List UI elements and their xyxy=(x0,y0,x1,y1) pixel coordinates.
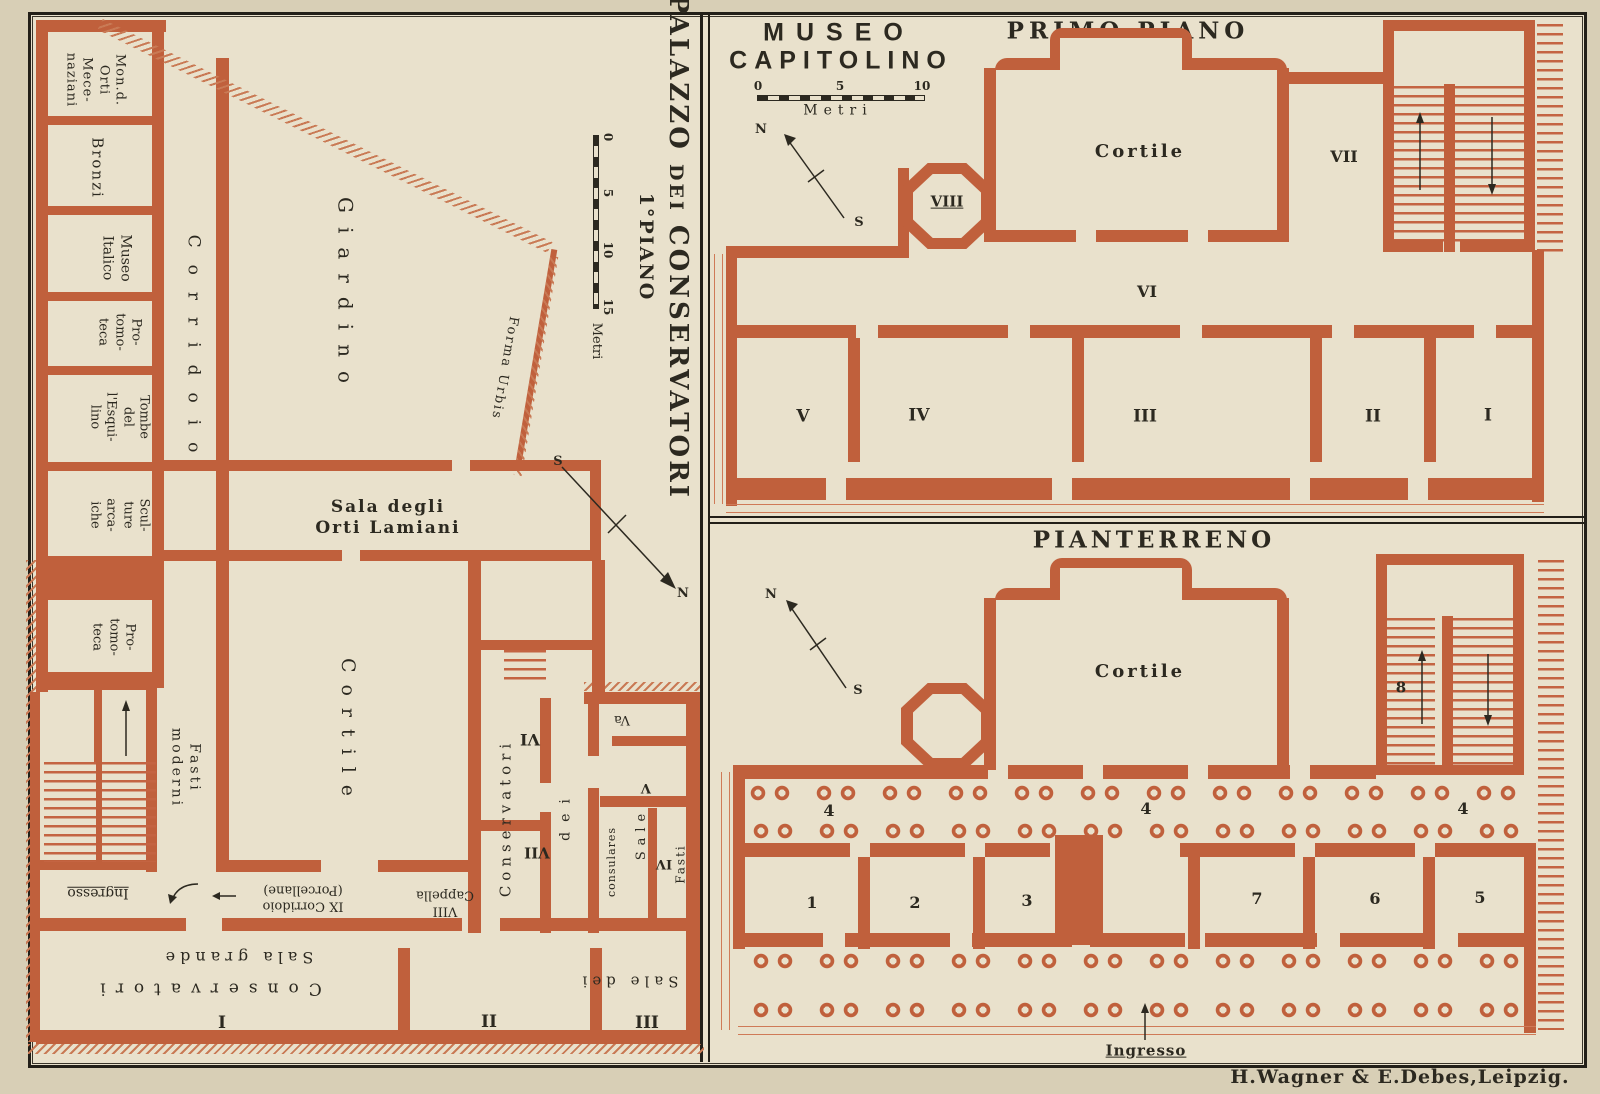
wall xyxy=(216,860,321,872)
wall xyxy=(1310,338,1322,462)
wall xyxy=(152,550,342,561)
room-number-iii: III xyxy=(1133,406,1157,427)
room-number-7: 7 xyxy=(1251,889,1262,909)
title-line-2: 1°PIANO xyxy=(634,0,658,500)
scale-unit: Metri xyxy=(588,323,604,360)
wall xyxy=(48,116,154,125)
room-label-museo-italico: Museo Italico xyxy=(99,234,134,281)
left-arrow-icon xyxy=(210,890,238,902)
scale-tick-15: 15 xyxy=(601,299,615,316)
room-label-cappella: VIII Cappella xyxy=(416,886,474,919)
stair-spine xyxy=(1442,616,1453,772)
colonnade xyxy=(745,822,1530,840)
stair-spine xyxy=(1444,84,1455,252)
compass-south: S xyxy=(853,683,862,699)
room-label-sculture: Scul- ture arca- iche xyxy=(87,498,152,531)
up-arrow-icon xyxy=(1416,650,1428,726)
compass-south: S xyxy=(854,215,863,231)
compass-icon xyxy=(552,455,684,597)
wall xyxy=(480,640,595,650)
title-line-1: PALAZZO DEI CONSERVATORI xyxy=(662,0,695,500)
wall xyxy=(846,478,1052,500)
pianterreno-heading: PIANTERRENO xyxy=(1033,527,1275,556)
room-label-giardino: Giardino xyxy=(333,197,358,397)
wall xyxy=(1524,20,1535,252)
scale-tick-0: 0 xyxy=(601,133,615,141)
room-label-conservatori: Conservatori xyxy=(90,977,321,998)
wall xyxy=(588,698,599,756)
wall xyxy=(726,478,826,500)
room-number-viii: VIII xyxy=(931,193,964,212)
wall xyxy=(36,918,186,931)
wall xyxy=(878,325,1008,338)
hatch-edge xyxy=(1538,560,1564,1030)
wall xyxy=(1277,598,1289,770)
facade-lines xyxy=(714,254,723,504)
room-number-1: 1 xyxy=(806,893,817,913)
ingresso-label: Ingresso xyxy=(1106,1042,1187,1061)
entrance-curve-arrow-icon xyxy=(162,876,204,908)
wall xyxy=(48,366,154,375)
portico-number-4-left: 4 xyxy=(823,801,834,821)
museo-title-line1: MUSEO xyxy=(763,17,915,48)
wall xyxy=(1460,240,1535,252)
wall xyxy=(1188,843,1200,949)
title-dei: DEI xyxy=(665,164,687,213)
wall xyxy=(468,560,481,933)
room-label-wing-conservatori: Conservatori xyxy=(497,739,516,897)
room-number-ii: II xyxy=(481,1008,497,1029)
facade-lines xyxy=(738,1026,1536,1035)
room-label-sale: Sale xyxy=(634,808,650,861)
wall xyxy=(733,765,745,849)
room-label-corridoio: Corridoio xyxy=(182,235,203,470)
wall xyxy=(1435,843,1525,857)
wall xyxy=(36,680,156,690)
down-arrow-icon xyxy=(1486,115,1498,195)
wall xyxy=(1383,20,1533,31)
wall xyxy=(1310,478,1408,500)
wall xyxy=(972,933,1072,947)
panel-divider-inner xyxy=(708,12,710,1062)
room-number-8: 8 xyxy=(1396,679,1406,698)
wall xyxy=(1072,478,1290,500)
wall xyxy=(1513,554,1524,772)
wall xyxy=(1283,72,1388,84)
wall xyxy=(540,812,551,933)
room-label-cortile: Cortile xyxy=(335,658,359,808)
museo-scale-unit: Metri xyxy=(803,102,872,120)
wall xyxy=(1340,933,1435,947)
wall xyxy=(48,206,154,215)
wall xyxy=(1103,765,1188,779)
down-arrow-icon xyxy=(1482,652,1494,726)
museo-scale-5: 5 xyxy=(836,79,844,93)
wall xyxy=(1208,230,1289,242)
colonnade xyxy=(745,952,1530,970)
wall xyxy=(1424,338,1436,462)
wall xyxy=(48,292,154,301)
left-panel-title: PALAZZO DEI CONSERVATORI 1°PIANO xyxy=(634,0,694,500)
room-number-vi: VI xyxy=(520,729,540,749)
up-arrow-icon xyxy=(1138,1002,1152,1042)
room-number-i: I xyxy=(218,1009,226,1030)
title-palazzo: PALAZZO xyxy=(663,0,693,152)
room-label-wing-dei: dei xyxy=(557,789,575,841)
wall xyxy=(1055,835,1103,945)
cortile-label: Cortile xyxy=(1095,661,1185,684)
compass-south: S xyxy=(553,454,562,470)
room-number-ii: II xyxy=(1365,406,1381,427)
museo-title-line2: CAPITOLINO xyxy=(729,45,953,76)
wall xyxy=(1376,554,1524,565)
room-number-iii: III xyxy=(635,1009,659,1030)
wall xyxy=(222,918,462,931)
wall xyxy=(984,68,996,242)
wall xyxy=(540,698,551,783)
wall xyxy=(1090,933,1185,947)
wall xyxy=(1310,765,1376,779)
wall xyxy=(600,796,688,807)
wall xyxy=(1383,20,1394,252)
wall xyxy=(726,248,737,506)
room-label-protomoteca-lower: Pro- tomo- teca xyxy=(89,618,138,656)
room-label-corridoio-ix: IX Corridoio (Porcellane) xyxy=(262,881,343,914)
wall xyxy=(30,692,40,1042)
wall xyxy=(216,58,229,560)
room-number-6: 6 xyxy=(1369,889,1380,909)
wall xyxy=(1208,765,1290,779)
scale-tick-5: 5 xyxy=(601,189,615,197)
portico-number-4-center: 4 xyxy=(1140,799,1151,819)
wall xyxy=(745,843,850,857)
museo-scale-0: 0 xyxy=(754,79,762,93)
wall xyxy=(1383,240,1443,252)
room-label-tombe: Tombe del l'Esqui- lino xyxy=(87,392,152,441)
wall xyxy=(1354,325,1474,338)
wall xyxy=(1202,325,1332,338)
panel-divider xyxy=(700,12,703,1062)
colonnade xyxy=(742,782,1530,804)
floor-divider xyxy=(710,516,1584,518)
room-label-fasti-moderni: Fasti moderni xyxy=(168,728,203,808)
room-number-v: V xyxy=(641,779,651,795)
wall xyxy=(1376,765,1524,775)
compass-icon xyxy=(782,596,854,696)
wall xyxy=(1428,478,1544,500)
baedeker-floorplan-map: Mon.d. Orti Mece- naziani Bronzi Museo I… xyxy=(0,0,1600,1094)
wall xyxy=(378,860,481,872)
room-number-5: 5 xyxy=(1474,888,1485,908)
cortile-bump-floor xyxy=(1060,568,1182,600)
room-label-sala-orti: Sala degli Orti Lamiani xyxy=(315,497,460,540)
room-number-vi: VI xyxy=(1137,282,1157,302)
octagon-room-floor xyxy=(913,694,981,758)
floor-divider-inner xyxy=(710,522,1584,524)
museo-scale-bar xyxy=(757,95,925,101)
wall xyxy=(588,788,599,933)
museo-scale-10: 10 xyxy=(914,79,931,93)
room-number-vii: VII xyxy=(1330,147,1357,167)
stair-spine xyxy=(96,762,102,862)
wall xyxy=(726,246,906,258)
wall xyxy=(985,843,1050,857)
hatch-edge xyxy=(28,1044,704,1054)
up-arrow-icon xyxy=(1414,112,1426,192)
wall xyxy=(1315,843,1415,857)
wall xyxy=(1277,68,1289,242)
stair-divider xyxy=(94,690,102,762)
room-number-3: 3 xyxy=(1021,891,1032,911)
stairs xyxy=(44,762,96,862)
wall xyxy=(1376,554,1387,772)
compass-north: N xyxy=(755,122,767,138)
wall xyxy=(398,948,410,1032)
room-number-v: V xyxy=(796,406,809,427)
wall xyxy=(1532,250,1544,502)
publisher-credit: H.Wagner & E.Debes,Leipzig. xyxy=(1230,1066,1569,1090)
up-arrow-icon xyxy=(120,700,132,758)
scale-bar xyxy=(593,135,599,309)
wall xyxy=(848,338,860,462)
hatch-edge xyxy=(1537,24,1563,252)
room-label-consulares: consulares xyxy=(605,827,619,897)
wall xyxy=(216,560,229,872)
wall xyxy=(733,933,823,947)
cortile-bump-floor xyxy=(1060,38,1182,70)
wall xyxy=(612,736,688,746)
wall xyxy=(1096,230,1188,242)
ingresso-label: Ingresso xyxy=(67,883,128,901)
room-label-va: Va xyxy=(614,711,630,727)
scale-tick-10: 10 xyxy=(601,242,615,259)
compass-icon xyxy=(778,128,854,224)
wall xyxy=(48,462,154,471)
compass-north: N xyxy=(677,586,689,602)
room-label-sale-dei: Sale dei xyxy=(578,972,679,991)
facade-lines xyxy=(726,504,1544,513)
cortile-label: Cortile xyxy=(1095,141,1185,164)
room-label-bronzi: Bronzi xyxy=(88,137,107,199)
facade-lines xyxy=(721,772,730,1030)
stairs xyxy=(504,650,546,686)
wall xyxy=(1030,325,1180,338)
wall xyxy=(733,765,988,779)
portico-number-4-right: 4 xyxy=(1457,799,1468,819)
stairs xyxy=(100,762,156,862)
wall xyxy=(1072,338,1084,462)
room-number-2: 2 xyxy=(909,893,920,913)
wall xyxy=(1008,765,1083,779)
wall xyxy=(845,933,950,947)
room-label-sala-grande: Sala grande xyxy=(161,947,314,967)
room-label-fasti: Fasti xyxy=(674,844,689,883)
wall xyxy=(984,230,1076,242)
compass-north: N xyxy=(765,587,777,603)
wall xyxy=(1458,933,1536,947)
room-number-vii: VII xyxy=(524,843,550,862)
room-number-i: I xyxy=(1484,405,1492,426)
wall xyxy=(1205,933,1317,947)
room-label-protomoteca-upper: Pro- tomo- teca xyxy=(95,313,144,351)
wall xyxy=(36,556,164,600)
wall xyxy=(726,325,856,338)
room-number-iv: IV xyxy=(656,855,672,871)
room-label-mon-orti: Mon.d. Orti Mece- naziani xyxy=(63,53,128,107)
wall xyxy=(870,843,965,857)
room-number-iv: IV xyxy=(908,405,929,426)
wall xyxy=(500,918,698,931)
wall xyxy=(36,1030,696,1044)
